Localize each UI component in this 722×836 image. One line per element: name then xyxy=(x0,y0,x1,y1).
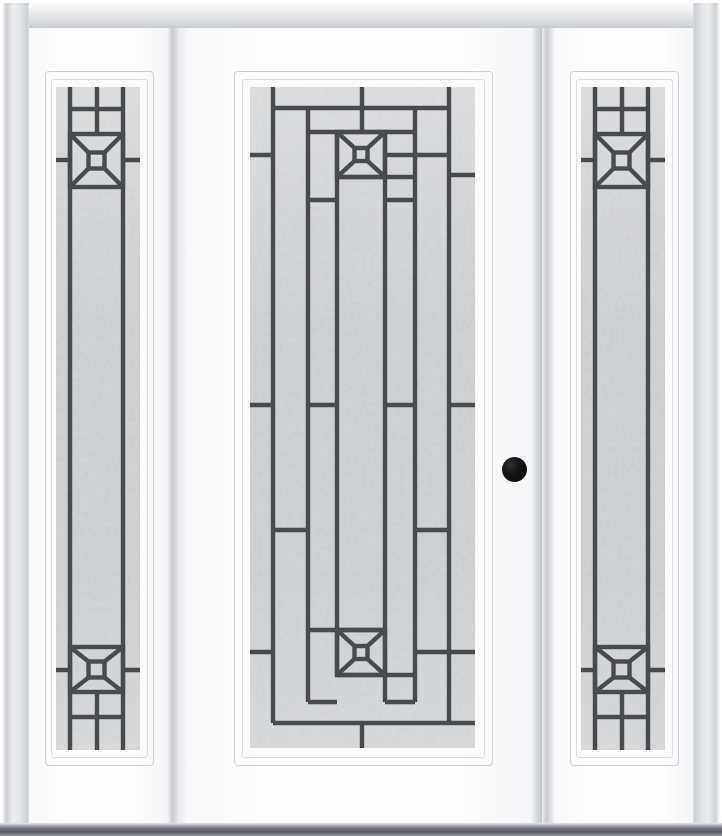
door-slab xyxy=(180,28,542,823)
brickmould-left xyxy=(2,3,29,823)
door-knob xyxy=(502,457,527,482)
brickmould-top xyxy=(2,3,720,30)
left-sidelite-caming-pattern xyxy=(56,87,140,750)
left-sidelite-glass xyxy=(56,87,140,750)
door-glass xyxy=(250,87,475,748)
door-lock-edge-shadow xyxy=(531,28,542,823)
right-mullion-shadow xyxy=(542,28,554,823)
door-caming-pattern xyxy=(250,87,475,748)
door-sill xyxy=(0,823,722,836)
door-unit-photo xyxy=(0,0,722,836)
right-sidelite-panel xyxy=(554,28,693,823)
left-mullion-shadow xyxy=(168,28,180,823)
door-hinge-edge-shadow xyxy=(180,28,188,823)
left-sidelite-panel xyxy=(29,28,168,823)
right-sidelite-caming-pattern xyxy=(581,87,665,750)
right-sidelite-glass xyxy=(581,87,665,750)
brickmould-right xyxy=(693,3,720,823)
